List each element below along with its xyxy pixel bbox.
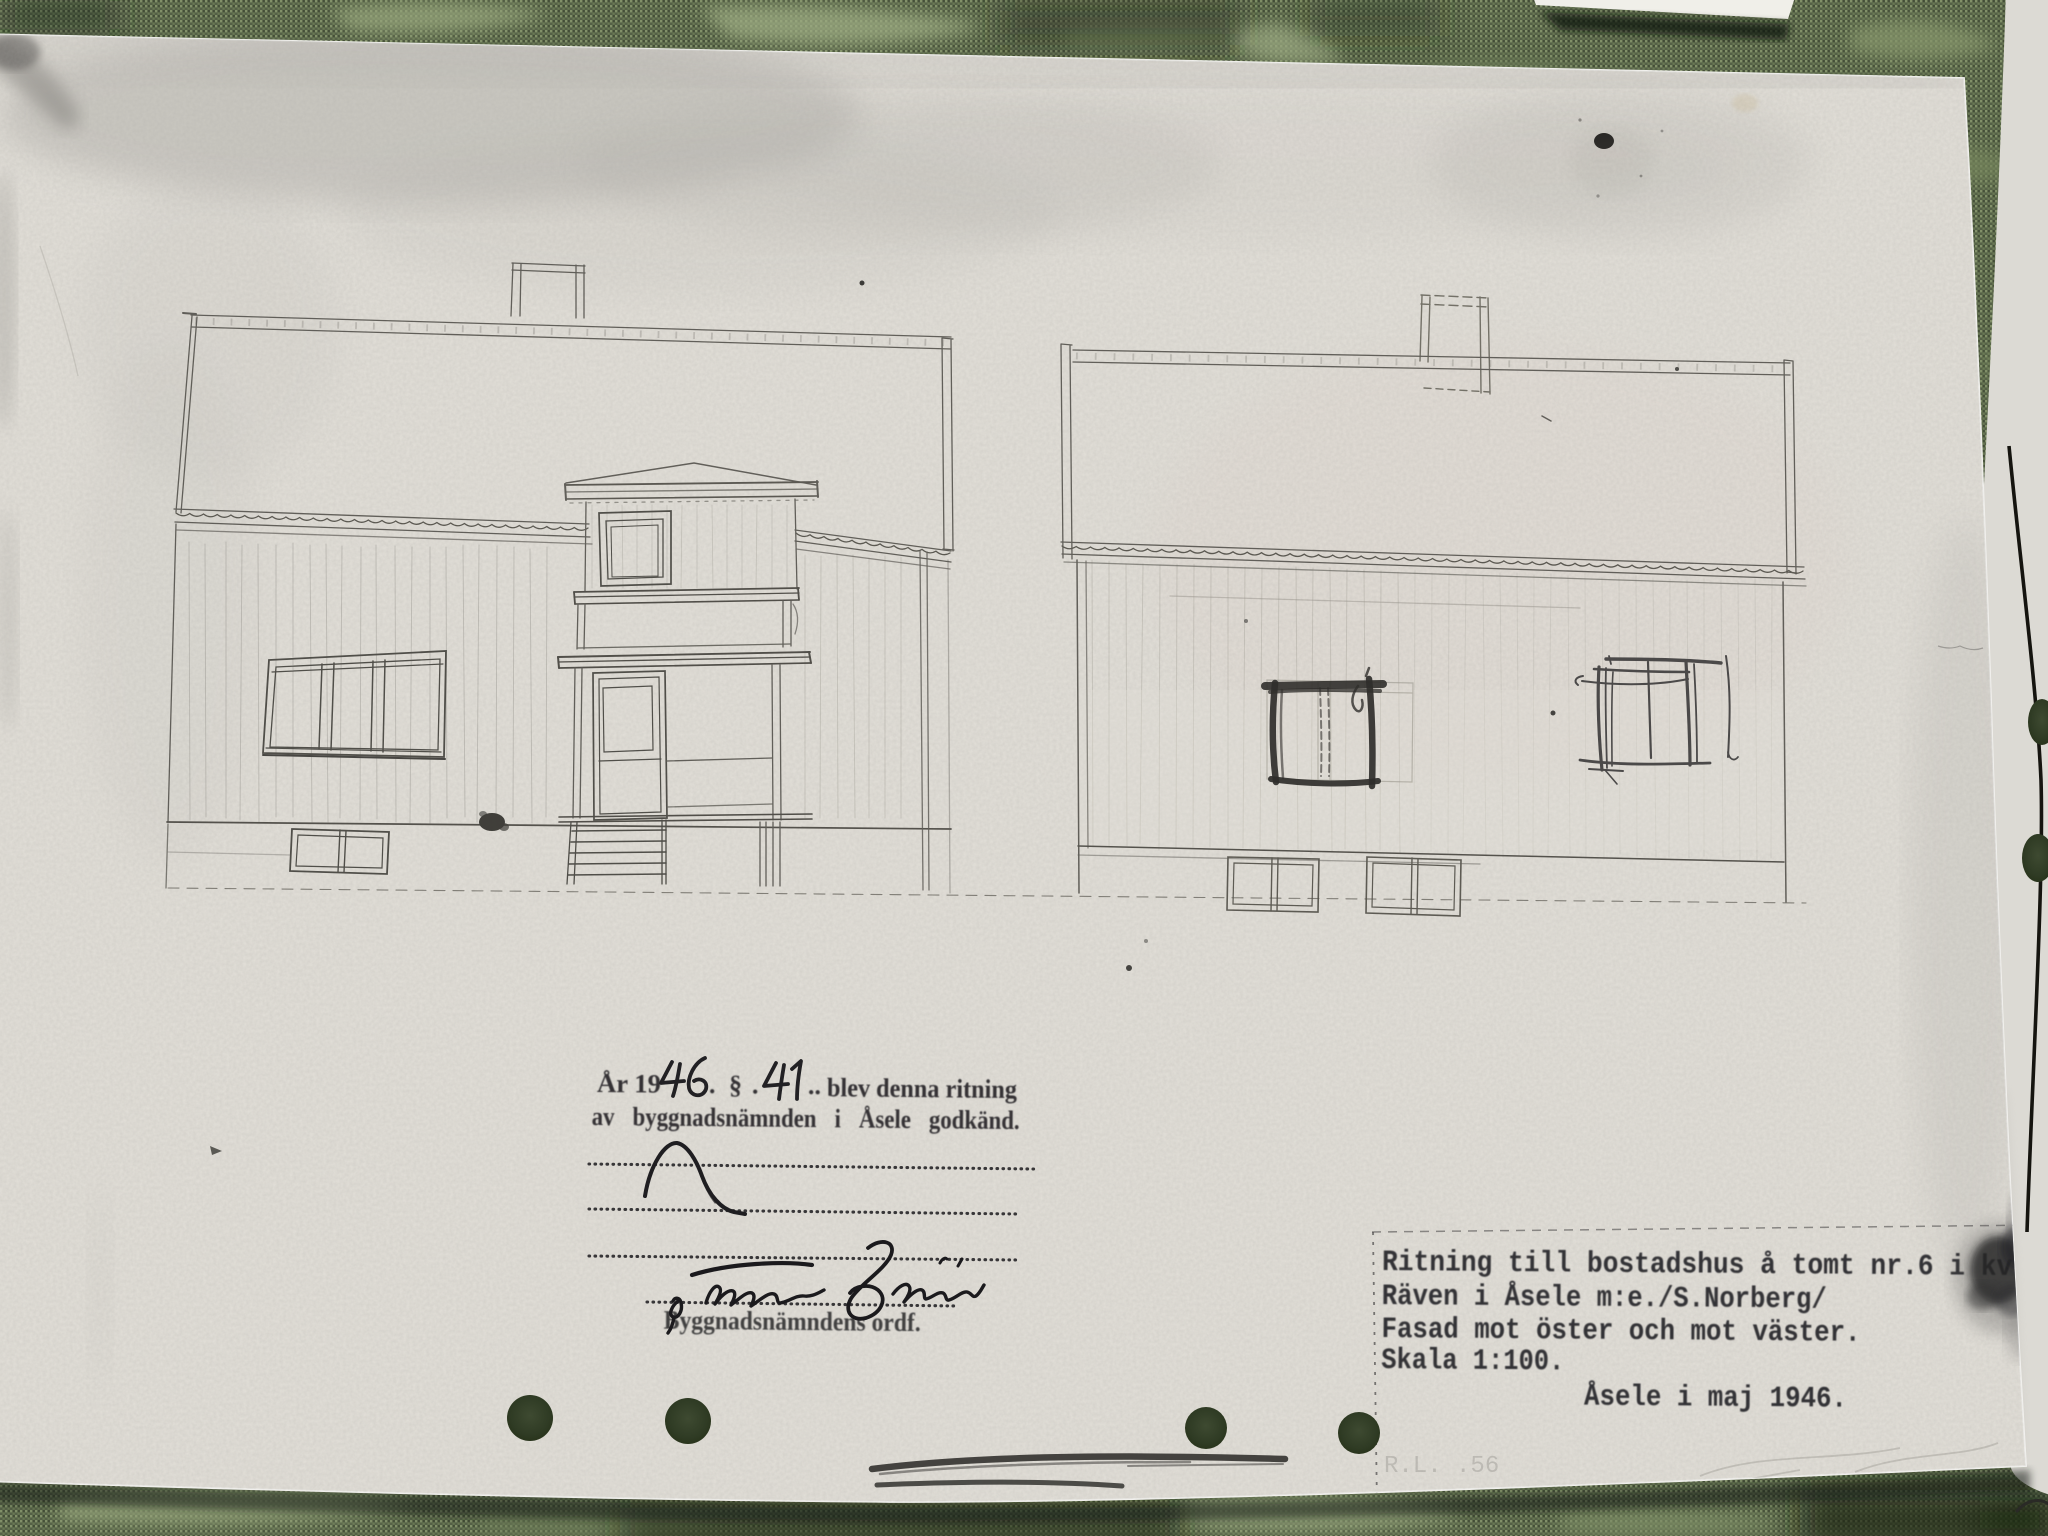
svg-text:blev denna ritning: blev denna ritning — [827, 1073, 1017, 1104]
svg-text:År 19: År 19 — [597, 1069, 661, 1099]
svg-text:.: . — [752, 1070, 759, 1099]
svg-text:§: § — [729, 1070, 742, 1099]
svg-text:R.L. .56: R.L. .56 — [1384, 1453, 1499, 1480]
svg-text:Byggnadsnämndens ordf.: Byggnadsnämndens ordf. — [664, 1306, 921, 1337]
svg-text:Åsele i maj 1946.: Åsele i maj 1946. — [1584, 1381, 1847, 1417]
svg-text:Ritning till bostadshus å tomt: Ritning till bostadshus å tomt nr.6 i kv… — [1382, 1246, 2028, 1285]
svg-text:Skala 1:100.: Skala 1:100. — [1381, 1344, 1564, 1379]
svg-text:av byggnadsnämnden i Åsele god: av byggnadsnämnden i Åsele godkänd. — [592, 1102, 1020, 1135]
svg-text:..: .. — [808, 1071, 821, 1100]
svg-text:Räven i Åsele m:e./S.Norberg/: Räven i Åsele m:e./S.Norberg/ — [1382, 1280, 1827, 1317]
svg-text:.: . — [709, 1070, 716, 1099]
